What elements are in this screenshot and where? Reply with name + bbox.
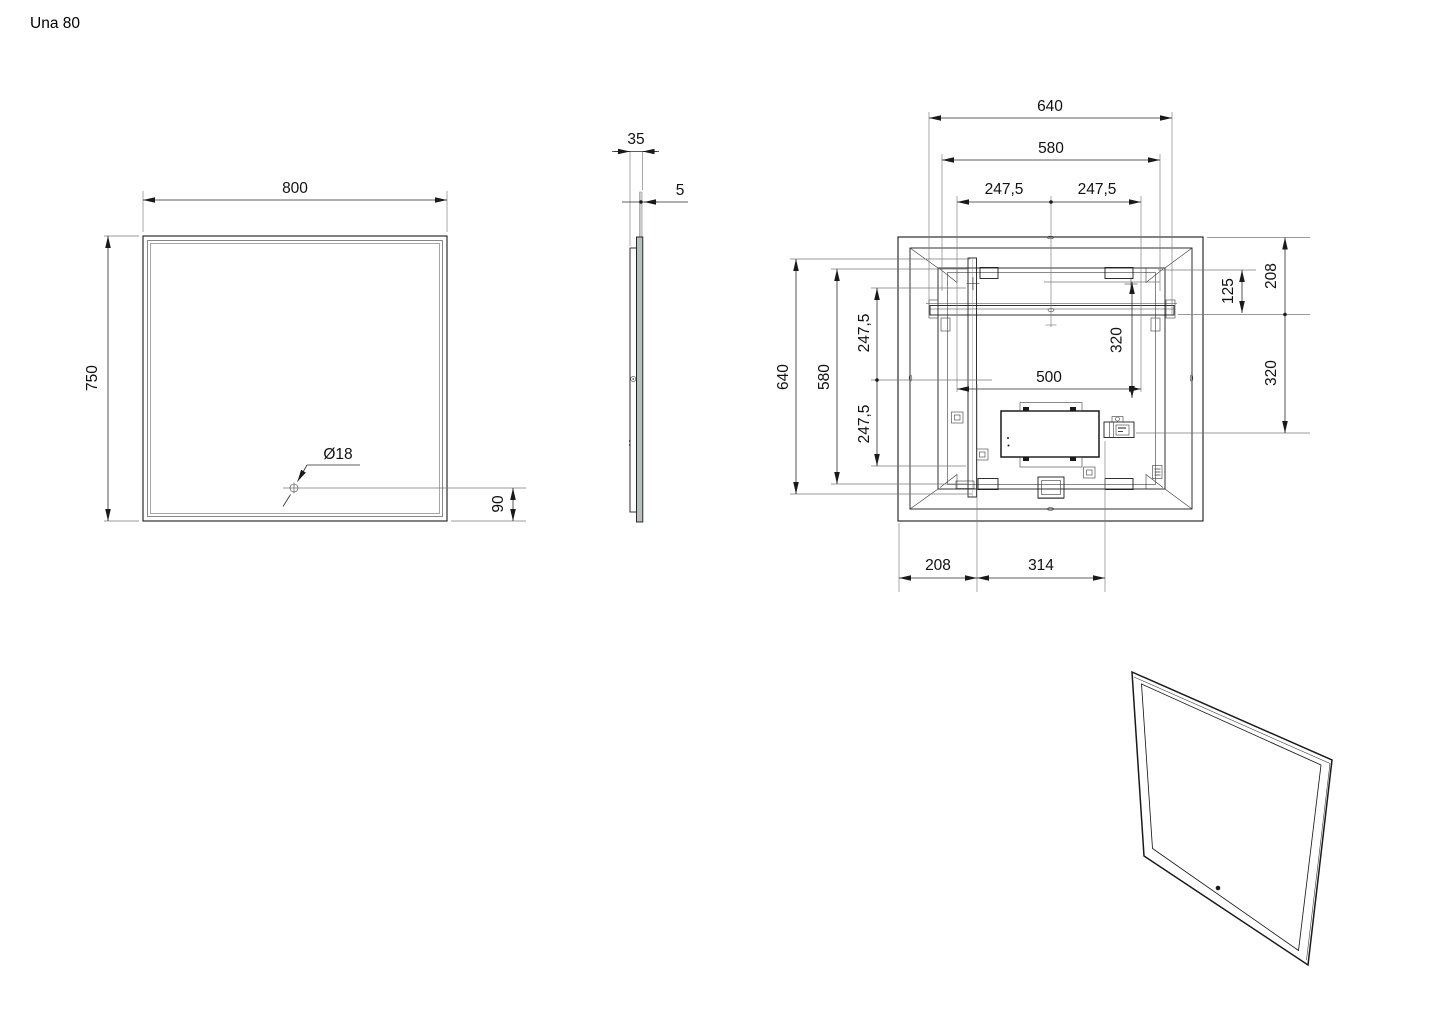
cable-clip [1084,467,1096,478]
side-detail-dot [629,444,631,446]
back-view: 640 580 247,5 247,5 640 580 247,5 247,5 … [775,98,1310,592]
drawing-title: Una 80 [30,15,80,32]
perspective-view [1132,672,1332,965]
driver-clip [1023,457,1029,461]
cable-clip-inner [955,415,961,420]
sensor-leader-tail [283,495,291,507]
dim-back-left-profile: 640 [775,364,792,390]
bevel-corner [1165,489,1192,509]
front-inner-border [148,241,443,517]
sensor-housing-inner [1042,481,1061,495]
dim-dot [875,378,879,382]
dim-side-depth: 35 [627,131,644,148]
front-view: Ø18 800 750 90 [84,180,526,521]
cable-clip [952,412,964,423]
dim-dot [639,200,642,203]
dim-back-left-span: 580 [816,364,833,390]
cable-clip-inner [980,452,986,457]
bracket-gusset [940,269,957,283]
bottom-left-bracket [978,479,998,490]
perspective-depth-edge [1134,677,1330,960]
dim-back-left-lower-half: 247,5 [856,405,873,444]
bracket-gusset [1146,269,1163,283]
dim-back-bottom-208: 208 [925,557,951,574]
dim-back-right-208: 208 [1263,263,1280,289]
dim-back-inner-500: 500 [1036,369,1062,386]
top-left-bracket [980,268,998,279]
front-mirror-outline [143,236,447,521]
dim-back-top-right-half: 247,5 [1078,181,1117,198]
perspective-sensor-dot [1216,886,1221,891]
junction-knob-circle [1116,417,1120,421]
dim-front-sensor-offset: 90 [490,495,507,513]
technical-drawing-page: Una 80 Ø18 800 750 90 [0,0,1440,1018]
dim-front-sensor-diameter: Ø18 [323,446,352,463]
dim-back-left-upper-half: 247,5 [856,314,873,353]
dim-back-top-left-half: 247,5 [985,181,1024,198]
driver-clip [1070,457,1076,461]
dim-dot [1049,200,1053,204]
hanging-rail [930,306,1174,316]
cable-clip [977,449,989,460]
rail-hook [941,318,950,331]
bracket-gusset [940,475,957,488]
bottom-right-bracket [1105,479,1133,490]
bevel-corner [1165,248,1192,268]
dim-front-width: 800 [282,180,308,197]
driver-clip [1070,407,1076,411]
led-driver-box [1001,411,1099,457]
top-right-bracket [1105,268,1133,279]
sensor-housing [1038,477,1064,498]
dim-back-right-320: 320 [1263,360,1280,386]
junction-label [1116,425,1129,435]
driver-dot [1008,445,1010,447]
side-glass [637,237,643,522]
perspective-inner-border [1142,684,1322,951]
side-view: 35 5 [612,131,688,522]
bevel-corner [910,489,938,509]
driver-dot [1007,437,1009,439]
dim-back-bottom-314: 314 [1028,557,1054,574]
bracket-gusset [1146,475,1163,488]
side-detail-dot [629,440,631,442]
glass-edge-projection [639,192,642,237]
front-frost-border [151,244,440,514]
driver-clip [1023,407,1029,411]
dim-back-right-125: 125 [1220,278,1237,304]
dim-side-glass-thickness: 5 [676,182,685,199]
dim-back-top-span: 580 [1038,140,1064,157]
cable-clip-inner [1087,470,1093,475]
dim-front-height: 750 [84,365,101,391]
bevel-corner [910,248,938,268]
dim-back-inner-320: 320 [1109,327,1126,353]
sensor-leader-arrow [298,465,308,482]
side-sensor-dot [632,378,634,380]
dim-back-top-rail: 640 [1037,98,1063,115]
drawing-canvas: Una 80 Ø18 800 750 90 [0,0,1440,1018]
